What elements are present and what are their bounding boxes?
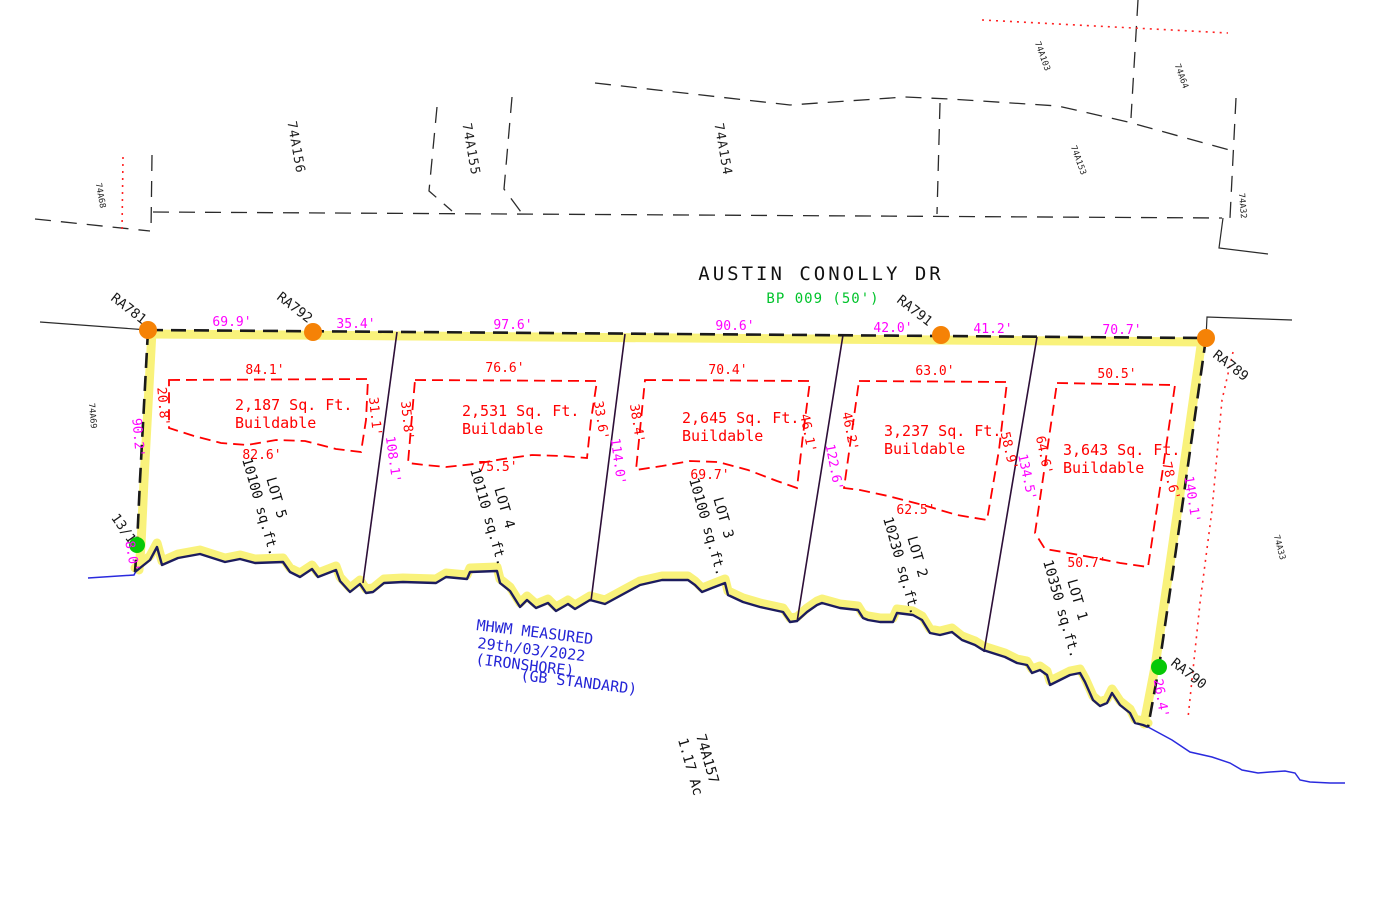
lot1-buildable-top: 50.5' xyxy=(1097,367,1136,382)
marker-dot-ra792 xyxy=(304,323,322,341)
lot1-buildable-area: 3,643 Sq. Ft. xyxy=(1063,441,1180,459)
lot2-buildable-area: 3,237 Sq. Ft. xyxy=(884,422,1001,440)
survey-map: AUSTIN CONOLLY DR BP 009 (50') 69.9' 35.… xyxy=(0,0,1398,924)
lot5-buildable-label: Buildable xyxy=(235,414,316,432)
lot1-buildable-label: Buildable xyxy=(1063,459,1144,477)
lot4-buildable-area: 2,531 Sq. Ft. xyxy=(462,402,579,420)
road-segment-2: 97.6' xyxy=(493,318,532,333)
survey-plat-page: AUSTIN CONOLLY DR BP 009 (50') 69.9' 35.… xyxy=(0,0,1398,924)
lot3-buildable-label: Buildable xyxy=(682,427,763,445)
road-segment-6: 70.7' xyxy=(1102,323,1141,338)
road-segment-5: 41.2' xyxy=(973,322,1012,337)
street-name: AUSTIN CONOLLY DR xyxy=(698,263,943,285)
marker-dot-ra789 xyxy=(1197,329,1215,347)
lot5-buildable-top: 84.1' xyxy=(245,363,284,378)
lot4-buildable-top: 76.6' xyxy=(485,361,524,376)
road-segment-3: 90.6' xyxy=(715,319,754,334)
lot2-buildable-bottom: 62.5' xyxy=(896,503,935,518)
lot2-buildable-top: 63.0' xyxy=(915,364,954,379)
lot4-buildable-label: Buildable xyxy=(462,420,543,438)
lot5-buildable-area: 2,187 Sq. Ft. xyxy=(235,396,352,414)
road-segment-4: 42.0' xyxy=(873,321,912,336)
lot2-buildable-label: Buildable xyxy=(884,440,965,458)
lot1-buildable-bottom: 50.7' xyxy=(1067,556,1106,571)
lot3-buildable-top: 70.4' xyxy=(708,363,747,378)
road-segment-0: 69.9' xyxy=(212,315,251,330)
marker-dot-ra791 xyxy=(932,326,950,344)
street-plan-label: BP 009 (50') xyxy=(766,291,879,307)
road-segment-1: 35.4' xyxy=(336,317,375,332)
marker-dot-ra790 xyxy=(1151,659,1167,675)
lot3-buildable-area: 2,645 Sq. Ft. xyxy=(682,409,799,427)
